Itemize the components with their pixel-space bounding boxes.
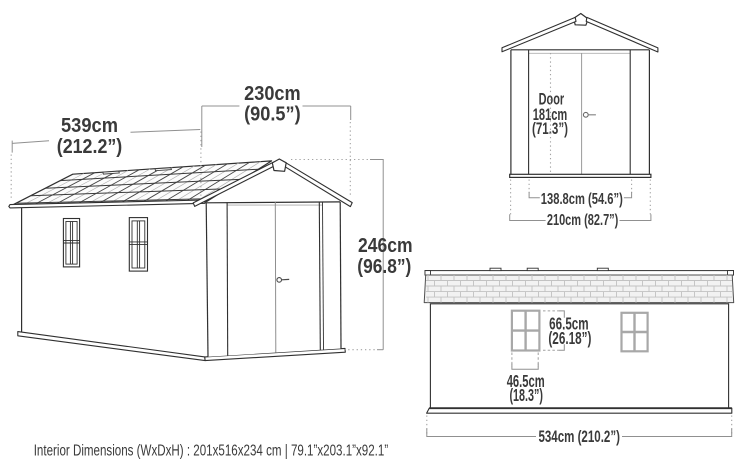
svg-text:(96.8”): (96.8”) (357, 256, 411, 278)
svg-text:210cm (82.7”): 210cm (82.7”) (547, 212, 619, 229)
svg-text:539cm: 539cm (61, 115, 118, 137)
svg-text:246cm: 246cm (358, 235, 413, 257)
svg-text:138.8cm (54.6”): 138.8cm (54.6”) (541, 191, 623, 208)
svg-text:(212.2”): (212.2”) (57, 136, 123, 158)
svg-text:534cm (210.2”): 534cm (210.2”) (538, 428, 620, 446)
svg-text:(90.5”): (90.5”) (244, 103, 301, 125)
svg-text:Interior Dimensions (WxDxH) :: Interior Dimensions (WxDxH) : 201x516x23… (34, 443, 389, 460)
svg-text:(26.18”): (26.18”) (548, 328, 591, 348)
svg-text:230cm: 230cm (244, 83, 301, 105)
svg-text:(18.3”): (18.3”) (509, 385, 543, 405)
